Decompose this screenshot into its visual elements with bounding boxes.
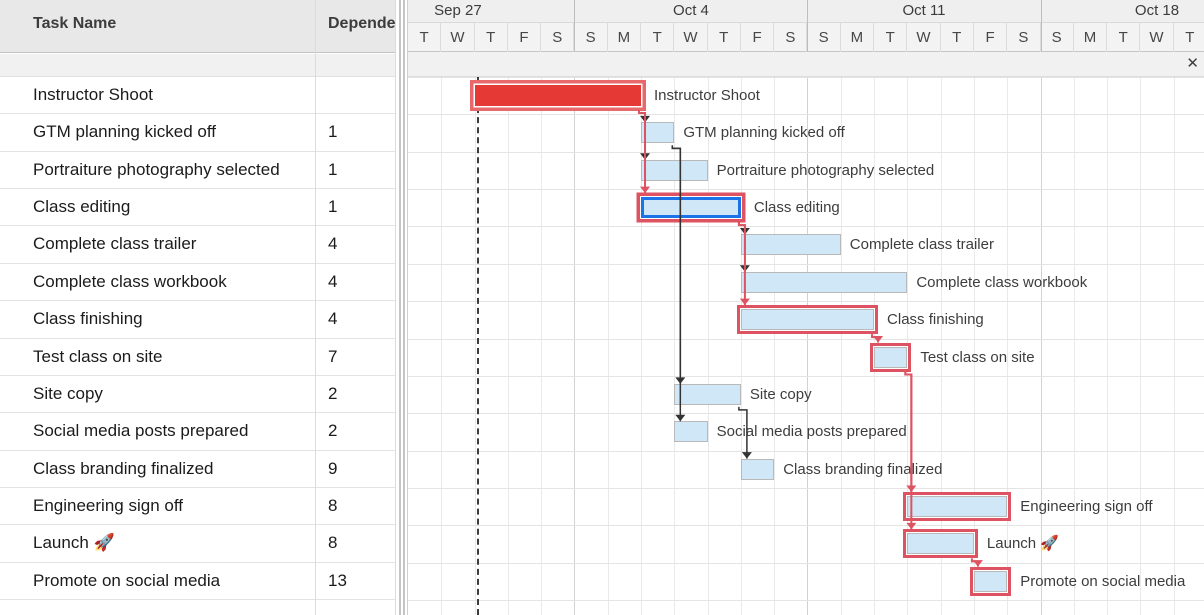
task-row[interactable]: Site copy2	[0, 376, 396, 413]
task-row[interactable]: Class editing1	[0, 189, 396, 226]
gantt-bar-task-9[interactable]	[674, 384, 741, 405]
task-row[interactable]: Portraiture photography selected1	[0, 152, 396, 189]
grid-vline	[974, 77, 975, 615]
grid-hline	[408, 413, 1204, 414]
grid-vline	[574, 77, 575, 615]
chart-grid	[408, 77, 1204, 615]
task-row[interactable]: Promote on social media13	[0, 563, 396, 600]
gantt-bar-task-6[interactable]	[741, 272, 907, 293]
task-name-cell[interactable]: Test class on site	[33, 347, 314, 367]
gantt-bar-task-5[interactable]	[741, 234, 841, 255]
task-row[interactable]: Launch 🚀8	[0, 525, 396, 562]
column-divider	[315, 0, 316, 615]
grid-vline	[741, 77, 742, 615]
grid-vline	[807, 77, 808, 615]
splitter-line	[399, 0, 401, 615]
day-header-cell: F	[974, 23, 1007, 52]
day-header-cell: T	[708, 23, 741, 52]
grid-vline	[1074, 77, 1075, 615]
bar-label: Class branding finalized	[783, 460, 942, 479]
pane-splitter[interactable]	[396, 0, 407, 615]
task-row[interactable]: Instructor Shoot	[0, 77, 396, 114]
grid-vline	[541, 77, 542, 615]
bar-label: GTM planning kicked off	[683, 123, 844, 142]
gantt-bar-task-8[interactable]	[874, 347, 907, 368]
grid-hline	[408, 451, 1204, 452]
bar-label: Test class on site	[920, 348, 1034, 367]
day-header-cell: S	[1041, 23, 1074, 52]
dependency-cell[interactable]: 4	[328, 309, 394, 329]
week-label: Oct 4	[673, 2, 709, 19]
grid-vline	[841, 77, 842, 615]
grid-vline	[641, 77, 642, 615]
gantt-bar-task-12[interactable]	[907, 496, 1007, 517]
day-header: TWTFSSMTWTFSSMTWTFSSMTWT	[408, 22, 1204, 52]
dependency-cell[interactable]: 2	[328, 384, 394, 404]
close-icon[interactable]: ✕	[1186, 55, 1199, 73]
splitter-line	[403, 0, 405, 615]
task-name-cell[interactable]: Class editing	[33, 197, 314, 217]
bar-label: Class editing	[754, 198, 840, 217]
task-table-panel: Task Name Dependencies Instructor ShootG…	[0, 0, 396, 615]
grid-vline	[1140, 77, 1141, 615]
day-header-cell: W	[441, 23, 474, 52]
dependency-cell[interactable]: 4	[328, 272, 394, 292]
gantt-bar-task-1[interactable]	[475, 85, 641, 106]
grid-hline	[408, 189, 1204, 190]
grid-hline	[408, 600, 1204, 601]
task-name-cell[interactable]: GTM planning kicked off	[33, 122, 314, 142]
day-header-cell: M	[841, 23, 874, 52]
grid-vline	[475, 77, 476, 615]
today-marker-line	[477, 77, 479, 615]
task-name-cell[interactable]: Complete class workbook	[33, 272, 314, 292]
grid-hline	[408, 339, 1204, 340]
grid-vline	[1174, 77, 1175, 615]
column-header-task-name: Task Name	[33, 15, 116, 33]
dependency-cell[interactable]: 9	[328, 459, 394, 479]
task-row[interactable]: Complete class trailer4	[0, 226, 396, 263]
day-header-cell: S	[774, 23, 807, 52]
day-header-cell: T	[475, 23, 508, 52]
task-row[interactable]: Complete class workbook4	[0, 264, 396, 301]
grid-vline	[1107, 77, 1108, 615]
task-row[interactable]: Class finishing4	[0, 301, 396, 338]
day-header-cell: T	[941, 23, 974, 52]
bar-label: Engineering sign off	[1020, 497, 1152, 516]
dependency-cell[interactable]: 8	[328, 496, 394, 516]
day-header-cell: S	[574, 23, 607, 52]
week-label: Sep 27	[434, 2, 482, 19]
bar-label: Complete class trailer	[850, 235, 994, 254]
week-label: Oct 11	[902, 2, 945, 19]
day-header-cell: T	[874, 23, 907, 52]
dependency-cell[interactable]: 13	[328, 571, 394, 591]
grid-hline	[408, 301, 1204, 302]
table-header-row: Task Name Dependencies	[0, 0, 396, 53]
grid-vline	[608, 77, 609, 615]
day-header-cell: M	[1074, 23, 1107, 52]
bar-label: Promote on social media	[1020, 572, 1185, 591]
dependency-cell[interactable]: 4	[328, 234, 394, 254]
day-header-cell: S	[1007, 23, 1040, 52]
gantt-bar-task-11[interactable]	[741, 459, 774, 480]
grid-hline	[408, 152, 1204, 153]
gantt-chart-panel: Sep 27Oct 4Oct 11Oct 18 TWTFSSMTWTFSSMTW…	[407, 0, 1204, 615]
gantt-app: Task Name Dependencies Instructor ShootG…	[0, 0, 1204, 615]
week-header: Sep 27Oct 4Oct 11Oct 18	[408, 0, 1204, 22]
gantt-bar-task-14[interactable]	[974, 571, 1007, 592]
grid-hline	[408, 376, 1204, 377]
gantt-bar-task-2[interactable]	[641, 122, 674, 143]
grid-hline	[408, 264, 1204, 265]
column-header-dependencies: Dependencies	[328, 15, 396, 33]
bar-label: Social media posts prepared	[717, 422, 907, 441]
task-row[interactable]: GTM planning kicked off1	[0, 114, 396, 151]
day-header-cell: W	[674, 23, 707, 52]
grid-hline	[408, 114, 1204, 115]
task-name-cell[interactable]: Portraiture photography selected	[33, 160, 314, 180]
dependency-cell[interactable]: 1	[328, 197, 394, 217]
dependency-cell[interactable]: 1	[328, 122, 394, 142]
day-header-cell: W	[1140, 23, 1173, 52]
week-label: Oct 18	[1135, 2, 1179, 19]
task-row[interactable]: Engineering sign off8	[0, 488, 396, 525]
day-header-cell: F	[741, 23, 774, 52]
day-header-cell: F	[508, 23, 541, 52]
bar-label: Class finishing	[887, 310, 984, 329]
day-header-cell: T	[641, 23, 674, 52]
grid-hline	[408, 563, 1204, 564]
gantt-bar-task-10[interactable]	[674, 421, 707, 442]
dependency-cell[interactable]: 1	[328, 160, 394, 180]
task-row[interactable]: Class branding finalized9	[0, 451, 396, 488]
gantt-bar-task-4[interactable]	[641, 197, 741, 218]
task-name-cell[interactable]: Launch 🚀	[33, 533, 314, 553]
task-name-cell[interactable]: Class branding finalized	[33, 459, 314, 479]
dependency-cell[interactable]: 2	[328, 421, 394, 441]
dependency-cell[interactable]: 8	[328, 533, 394, 553]
task-name-cell[interactable]: Social media posts prepared	[33, 421, 314, 441]
gantt-bar-task-13[interactable]	[907, 533, 974, 554]
bar-label: Instructor Shoot	[654, 86, 760, 105]
week-divider	[807, 0, 808, 52]
day-header-cell: S	[541, 23, 574, 52]
grid-vline	[708, 77, 709, 615]
grid-vline	[508, 77, 509, 615]
grid-hline	[408, 488, 1204, 489]
week-divider	[1041, 0, 1042, 52]
grid-vline	[441, 77, 442, 615]
day-header-cell: S	[807, 23, 840, 52]
day-header-cell: T	[408, 23, 441, 52]
grid-vline	[774, 77, 775, 615]
task-name-cell[interactable]: Promote on social media	[33, 571, 314, 591]
bar-label: Complete class workbook	[916, 273, 1087, 292]
task-name-cell[interactable]: Site copy	[33, 384, 314, 404]
task-row[interactable]: Social media posts prepared2	[0, 413, 396, 450]
grid-hline	[408, 77, 1204, 78]
bar-label: Site copy	[750, 385, 812, 404]
day-header-cell: W	[907, 23, 940, 52]
chart-info-band: ✕	[408, 52, 1204, 77]
task-name-cell[interactable]: Instructor Shoot	[33, 85, 314, 105]
day-header-cell: T	[1174, 23, 1204, 52]
grid-vline	[674, 77, 675, 615]
bar-label: Portraiture photography selected	[717, 161, 935, 180]
gantt-bar-task-7[interactable]	[741, 309, 874, 330]
task-name-cell[interactable]: Engineering sign off	[33, 496, 314, 516]
bar-label: Launch 🚀	[987, 534, 1059, 553]
task-name-cell[interactable]: Class finishing	[33, 309, 314, 329]
task-row[interactable]: Test class on site7	[0, 339, 396, 376]
day-header-cell: T	[1107, 23, 1140, 52]
task-name-cell[interactable]: Complete class trailer	[33, 234, 314, 254]
grid-hline	[408, 226, 1204, 227]
dependency-cell[interactable]: 7	[328, 347, 394, 367]
table-subheader-band	[0, 54, 396, 77]
grid-hline	[408, 525, 1204, 526]
gantt-bar-task-3[interactable]	[641, 160, 708, 181]
day-header-cell: M	[608, 23, 641, 52]
week-divider	[574, 0, 575, 52]
